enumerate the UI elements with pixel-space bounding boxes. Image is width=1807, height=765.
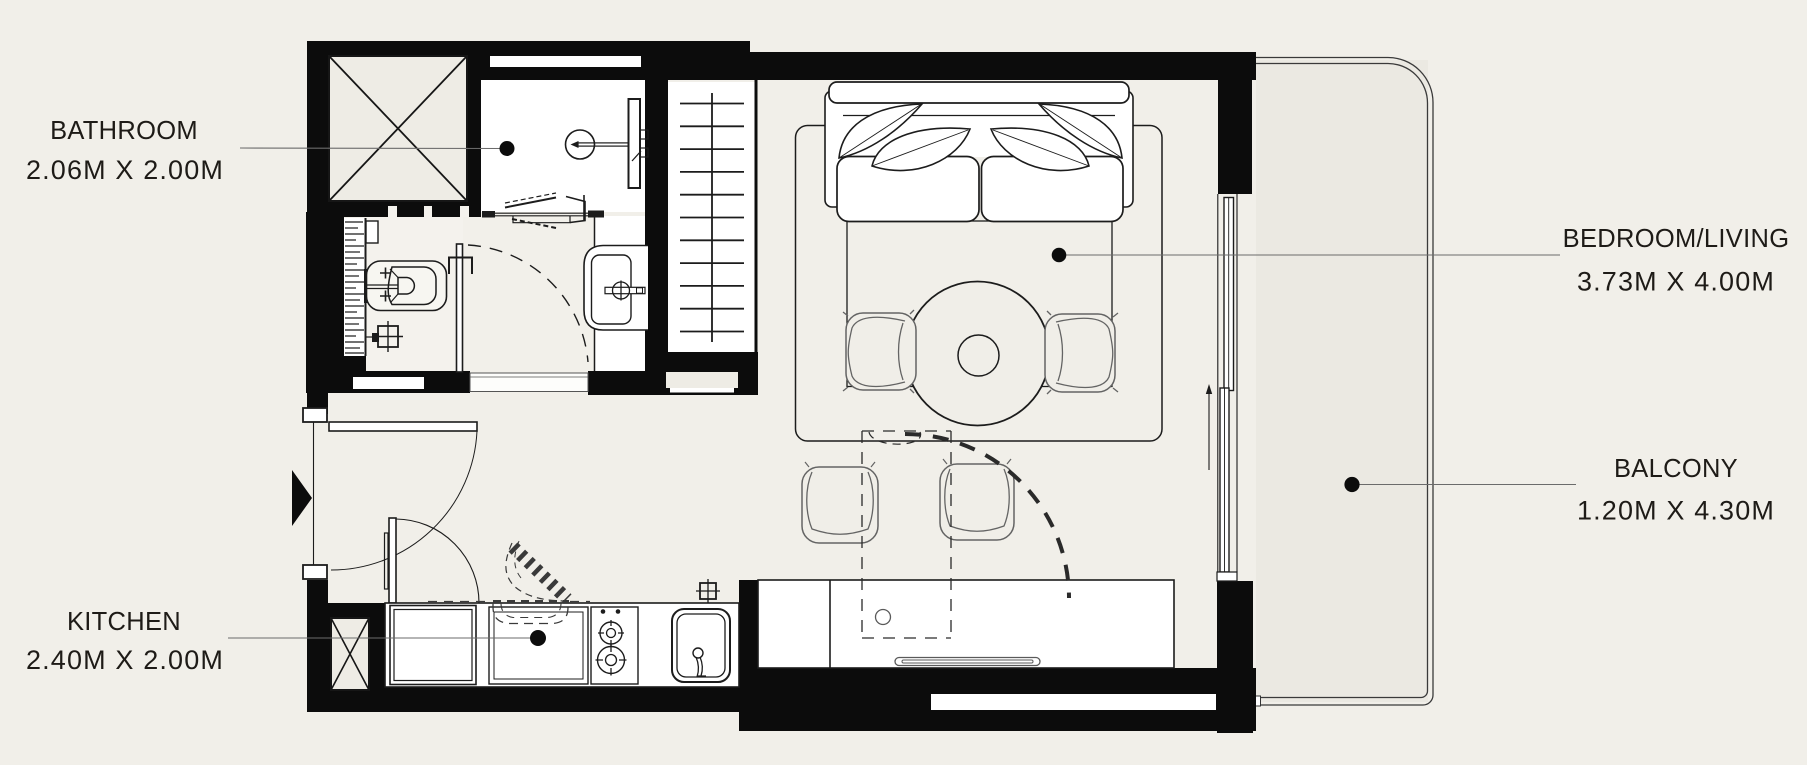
- svg-text:BATHROOM: BATHROOM: [50, 117, 198, 145]
- svg-text:3.73M X 4.00M: 3.73M X 4.00M: [1577, 267, 1775, 297]
- svg-text:BALCONY: BALCONY: [1614, 455, 1738, 483]
- svg-text:1.20M X 4.30M: 1.20M X 4.30M: [1577, 496, 1775, 526]
- svg-text:BEDROOM/LIVING: BEDROOM/LIVING: [1563, 225, 1790, 253]
- svg-text:KITCHEN: KITCHEN: [67, 608, 181, 636]
- svg-text:2.40M X 2.00M: 2.40M X 2.00M: [26, 645, 224, 675]
- svg-text:2.06M X 2.00M: 2.06M X 2.00M: [26, 155, 224, 185]
